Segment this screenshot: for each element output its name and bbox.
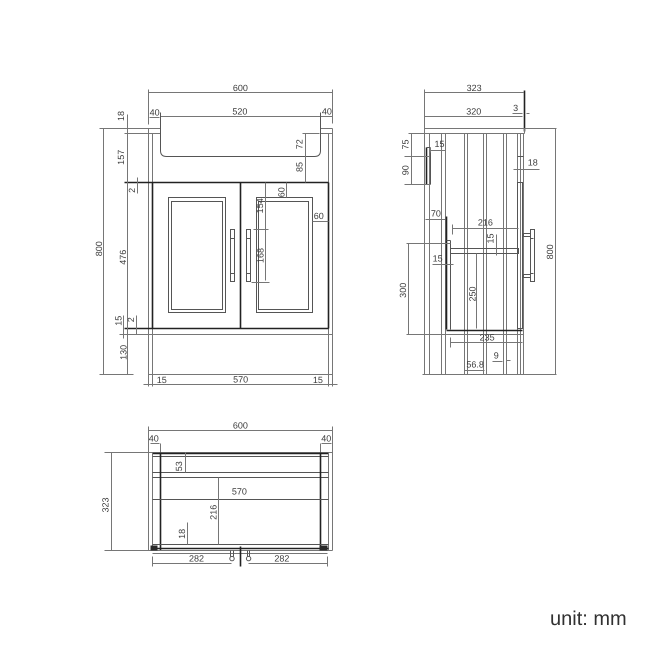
svg-text:15: 15 bbox=[486, 233, 496, 243]
svg-text:320: 320 bbox=[466, 107, 481, 117]
svg-text:800: 800 bbox=[545, 244, 555, 259]
svg-text:570: 570 bbox=[233, 374, 248, 384]
svg-text:570: 570 bbox=[232, 486, 247, 496]
svg-text:85: 85 bbox=[295, 162, 305, 172]
svg-text:53: 53 bbox=[174, 461, 184, 471]
svg-text:800: 800 bbox=[94, 241, 104, 256]
svg-text:250: 250 bbox=[468, 286, 478, 301]
svg-text:216: 216 bbox=[209, 505, 219, 520]
svg-text:40: 40 bbox=[149, 434, 159, 444]
svg-text:15: 15 bbox=[434, 139, 444, 149]
svg-text:75: 75 bbox=[401, 139, 411, 149]
svg-text:15: 15 bbox=[157, 375, 167, 385]
svg-text:15: 15 bbox=[433, 254, 443, 264]
svg-text:157: 157 bbox=[116, 150, 126, 165]
svg-text:168: 168 bbox=[255, 248, 265, 263]
svg-text:282: 282 bbox=[274, 554, 289, 564]
svg-text:40: 40 bbox=[321, 434, 331, 444]
svg-text:282: 282 bbox=[189, 554, 204, 564]
svg-text:154: 154 bbox=[255, 198, 265, 213]
svg-text:72: 72 bbox=[295, 139, 305, 149]
svg-text:130: 130 bbox=[119, 345, 129, 360]
svg-text:9: 9 bbox=[494, 350, 499, 360]
svg-text:40: 40 bbox=[150, 107, 160, 117]
svg-text:323: 323 bbox=[467, 83, 482, 93]
svg-text:600: 600 bbox=[233, 420, 248, 430]
svg-text:2: 2 bbox=[127, 188, 137, 193]
svg-text:600: 600 bbox=[233, 83, 248, 93]
svg-text:18: 18 bbox=[116, 111, 126, 121]
svg-text:90: 90 bbox=[401, 165, 411, 175]
svg-text:40: 40 bbox=[322, 107, 332, 117]
svg-text:216: 216 bbox=[478, 218, 493, 228]
svg-text:2: 2 bbox=[126, 317, 136, 322]
svg-text:15: 15 bbox=[313, 375, 323, 385]
svg-text:70: 70 bbox=[431, 208, 441, 218]
svg-text:235: 235 bbox=[480, 333, 495, 343]
svg-text:60: 60 bbox=[314, 211, 324, 221]
svg-text:18: 18 bbox=[528, 157, 538, 167]
svg-text:18: 18 bbox=[177, 529, 187, 539]
svg-text:520: 520 bbox=[232, 107, 247, 117]
svg-text:476: 476 bbox=[118, 250, 128, 265]
svg-text:unit: mm: unit: mm bbox=[550, 608, 627, 630]
svg-text:323: 323 bbox=[101, 497, 111, 512]
svg-text:60: 60 bbox=[277, 187, 287, 197]
svg-text:3: 3 bbox=[513, 103, 518, 113]
svg-text:15: 15 bbox=[114, 316, 124, 326]
svg-text:300: 300 bbox=[398, 283, 408, 298]
svg-text:56.8: 56.8 bbox=[466, 360, 484, 370]
